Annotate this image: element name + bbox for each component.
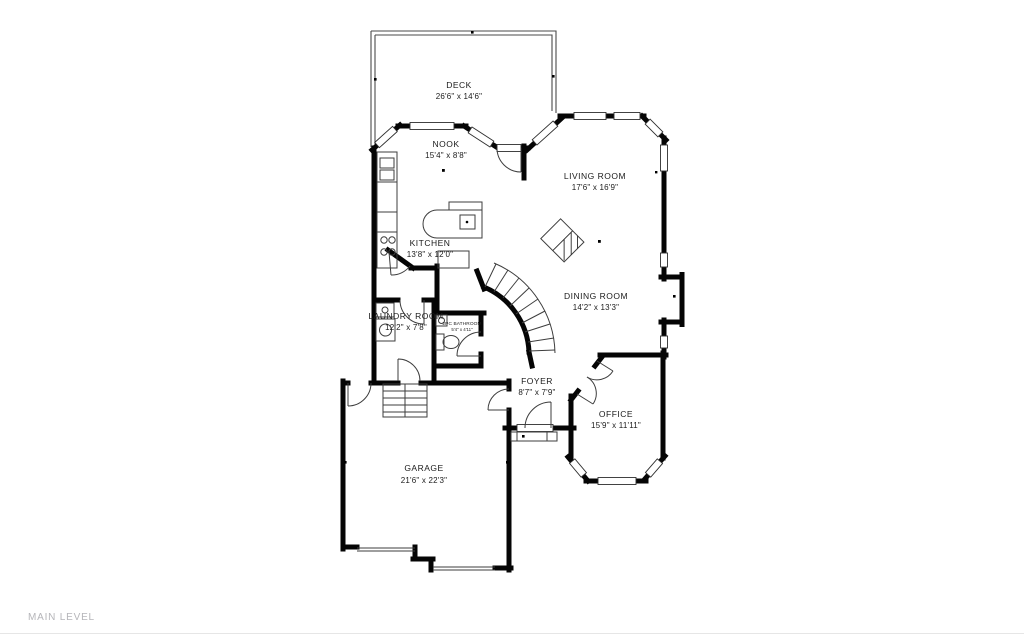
foyer-dims: 8'7" x 7'9" (518, 388, 555, 397)
floor-plan-page: DECK 26'6" x 14'6" NOOK 15'4" x 8'8" LIV… (0, 0, 1024, 639)
office-name: OFFICE (599, 409, 633, 419)
patio-door-sill (497, 145, 521, 152)
bathroom-dims: 5'4" x 4'11" (451, 327, 473, 332)
openings (357, 145, 557, 571)
room-label-kitchen: KITCHEN 13'8" x 12'0" (407, 238, 453, 259)
bottom-divider (0, 633, 1024, 634)
garage-name: GARAGE (404, 463, 443, 473)
fireplace-icon (541, 219, 584, 262)
walls (343, 116, 682, 570)
room-label-foyer: FOYER 8'7" x 7'9" (518, 376, 555, 397)
dining-room-name: DINING ROOM (564, 291, 628, 301)
kitchen-counter (377, 152, 397, 268)
living-room-name: LIVING ROOM (564, 171, 626, 181)
toilet-icon (436, 334, 459, 350)
laundry-room-dims: 12'2" x 7'8" (385, 323, 427, 332)
kitchen-sink-icon (380, 158, 394, 180)
kitchen-dims: 13'8" x 12'0" (407, 250, 453, 259)
room-label-deck: DECK 26'6" x 14'6" (436, 80, 482, 101)
room-label-nook: NOOK 15'4" x 8'8" (425, 139, 467, 160)
nook-dims: 15'4" x 8'8" (425, 151, 467, 160)
room-label-garage: GARAGE 21'6" x 22'3" (401, 463, 447, 485)
kitchen-name: KITCHEN (410, 238, 451, 248)
garage-dims: 21'6" x 22'3" (401, 476, 447, 485)
office-dims: 15'9" x 11'11" (591, 421, 641, 430)
deck-name: DECK (446, 80, 472, 90)
room-label-dining-room: DINING ROOM 14'2" x 13'3" (564, 291, 628, 312)
garage-door-left (357, 548, 415, 551)
dining-room-dims: 14'2" x 13'3" (573, 303, 619, 312)
level-label: MAIN LEVEL (28, 612, 95, 623)
staircase (485, 263, 555, 353)
foyer-name: FOYER (521, 376, 553, 386)
laundry-appliances (376, 303, 395, 341)
living-room-dims: 17'6" x 16'9" (572, 183, 618, 192)
garage-stairs (383, 384, 427, 417)
room-label-living-room: LIVING ROOM 17'6" x 16'9" (564, 171, 626, 192)
porch-step (511, 432, 557, 441)
nook-name: NOOK (432, 139, 459, 149)
room-labels: DECK 26'6" x 14'6" NOOK 15'4" x 8'8" LIV… (368, 80, 641, 485)
floor-plan-drawing: DECK 26'6" x 14'6" NOOK 15'4" x 8'8" LIV… (0, 0, 1024, 639)
garage-door-right (433, 567, 495, 570)
front-door-sill (517, 425, 553, 432)
marker-dots (344, 31, 676, 464)
laundry-room-name: LAUNDRY ROOM (368, 311, 443, 321)
deck-dims: 26'6" x 14'6" (436, 92, 482, 101)
kitchen-island (423, 202, 482, 238)
room-label-bathroom: 2PC BATHROOM 5'4" x 4'11" (442, 321, 481, 332)
room-label-office: OFFICE 15'9" x 11'11" (591, 409, 641, 430)
